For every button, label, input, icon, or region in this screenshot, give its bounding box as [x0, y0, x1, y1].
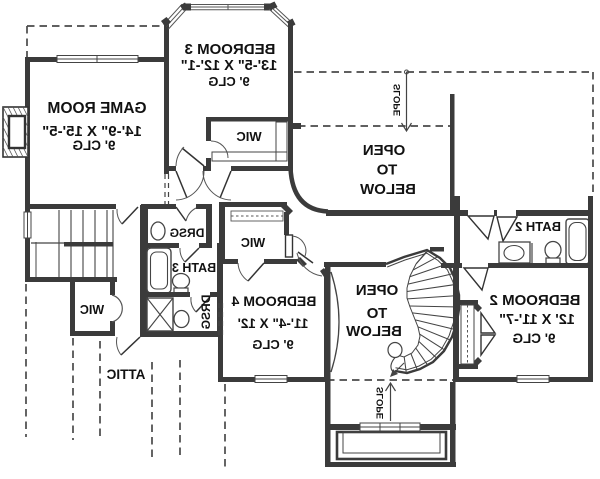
- svg-text:BEDROOM 4: BEDROOM 4: [231, 293, 316, 309]
- svg-text:BEDROOM 2: BEDROOM 2: [490, 292, 581, 309]
- svg-text:SLOPE: SLOPE: [392, 84, 403, 116]
- svg-text:9' CLG: 9' CLG: [252, 337, 293, 352]
- svg-text:BELOW: BELOW: [359, 181, 416, 198]
- svg-text:13'-5" X 12'-1": 13'-5" X 12'-1": [181, 58, 277, 74]
- svg-text:DRSG: DRSG: [170, 226, 205, 240]
- svg-text:ATTIC: ATTIC: [106, 367, 145, 382]
- svg-text:WIC: WIC: [236, 129, 262, 144]
- svg-text:BATH 2: BATH 2: [515, 219, 561, 234]
- svg-text:12' X 11'-7": 12' X 11'-7": [499, 312, 575, 328]
- svg-text:9' CLG: 9' CLG: [208, 74, 249, 89]
- svg-text:WIC: WIC: [80, 303, 104, 317]
- svg-text:9' CLG: 9' CLG: [73, 138, 116, 153]
- svg-text:SLOPE: SLOPE: [375, 387, 386, 419]
- svg-text:OPEN: OPEN: [356, 282, 399, 299]
- svg-text:BEDROOM 3: BEDROOM 3: [185, 41, 276, 58]
- svg-text:GAME ROOM: GAME ROOM: [47, 100, 146, 117]
- svg-text:DRSG: DRSG: [199, 295, 213, 330]
- svg-text:OPEN: OPEN: [363, 142, 406, 159]
- svg-text:9' CLG: 9' CLG: [513, 331, 556, 346]
- svg-text:TO: TO: [366, 305, 387, 322]
- svg-text:11'-4" X 12': 11'-4" X 12': [238, 316, 309, 331]
- svg-text:TO: TO: [376, 162, 397, 179]
- svg-text:BATH 3: BATH 3: [172, 261, 216, 275]
- svg-text:WIC: WIC: [241, 236, 265, 250]
- svg-text:BELOW: BELOW: [345, 323, 402, 340]
